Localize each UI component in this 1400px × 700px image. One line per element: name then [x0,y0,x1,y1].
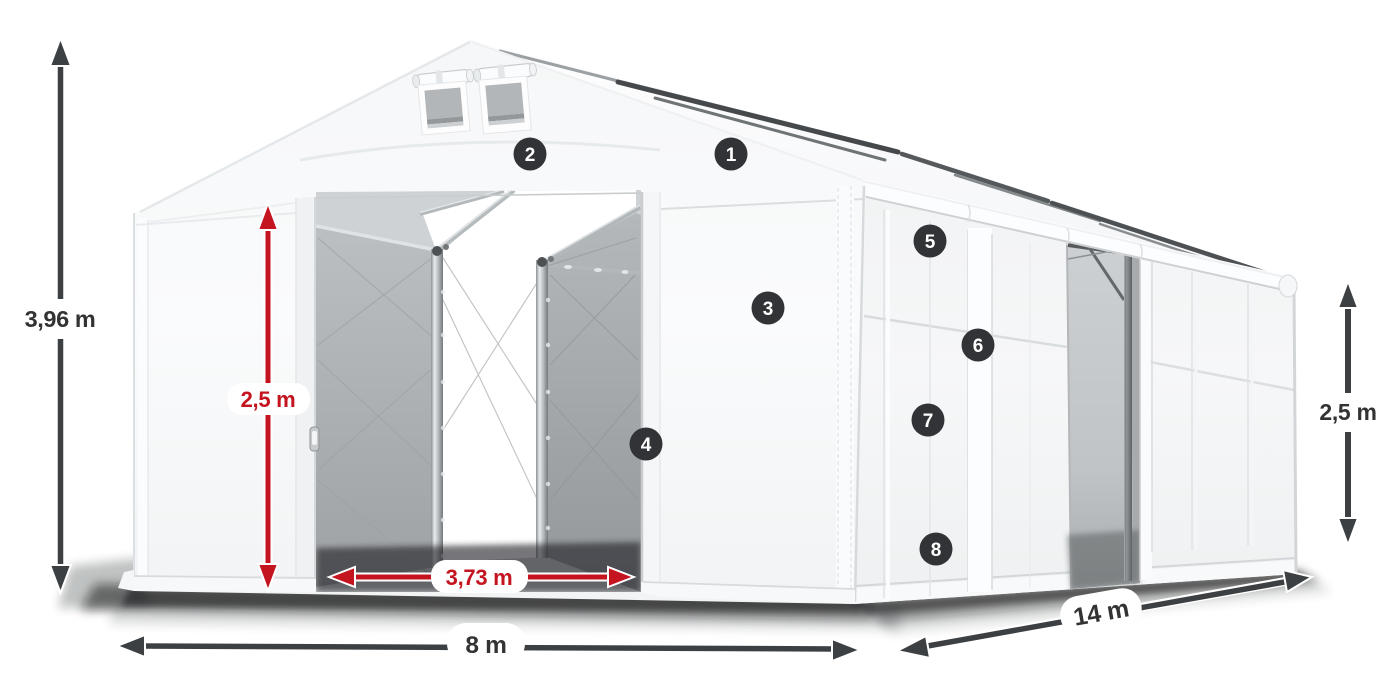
svg-text:1: 1 [726,145,737,166]
svg-text:2,5 m: 2,5 m [1319,399,1376,425]
svg-text:3,73 m: 3,73 m [446,565,513,590]
svg-text:3: 3 [763,299,774,320]
svg-text:8: 8 [931,540,942,561]
svg-text:5: 5 [925,232,936,253]
svg-text:2: 2 [525,145,536,166]
svg-text:7: 7 [923,411,934,432]
svg-text:6: 6 [973,336,984,357]
svg-text:2,5 m: 2,5 m [241,387,296,412]
svg-text:4: 4 [641,435,652,456]
svg-text:3,96 m: 3,96 m [25,306,96,332]
svg-text:8 m: 8 m [465,632,506,659]
